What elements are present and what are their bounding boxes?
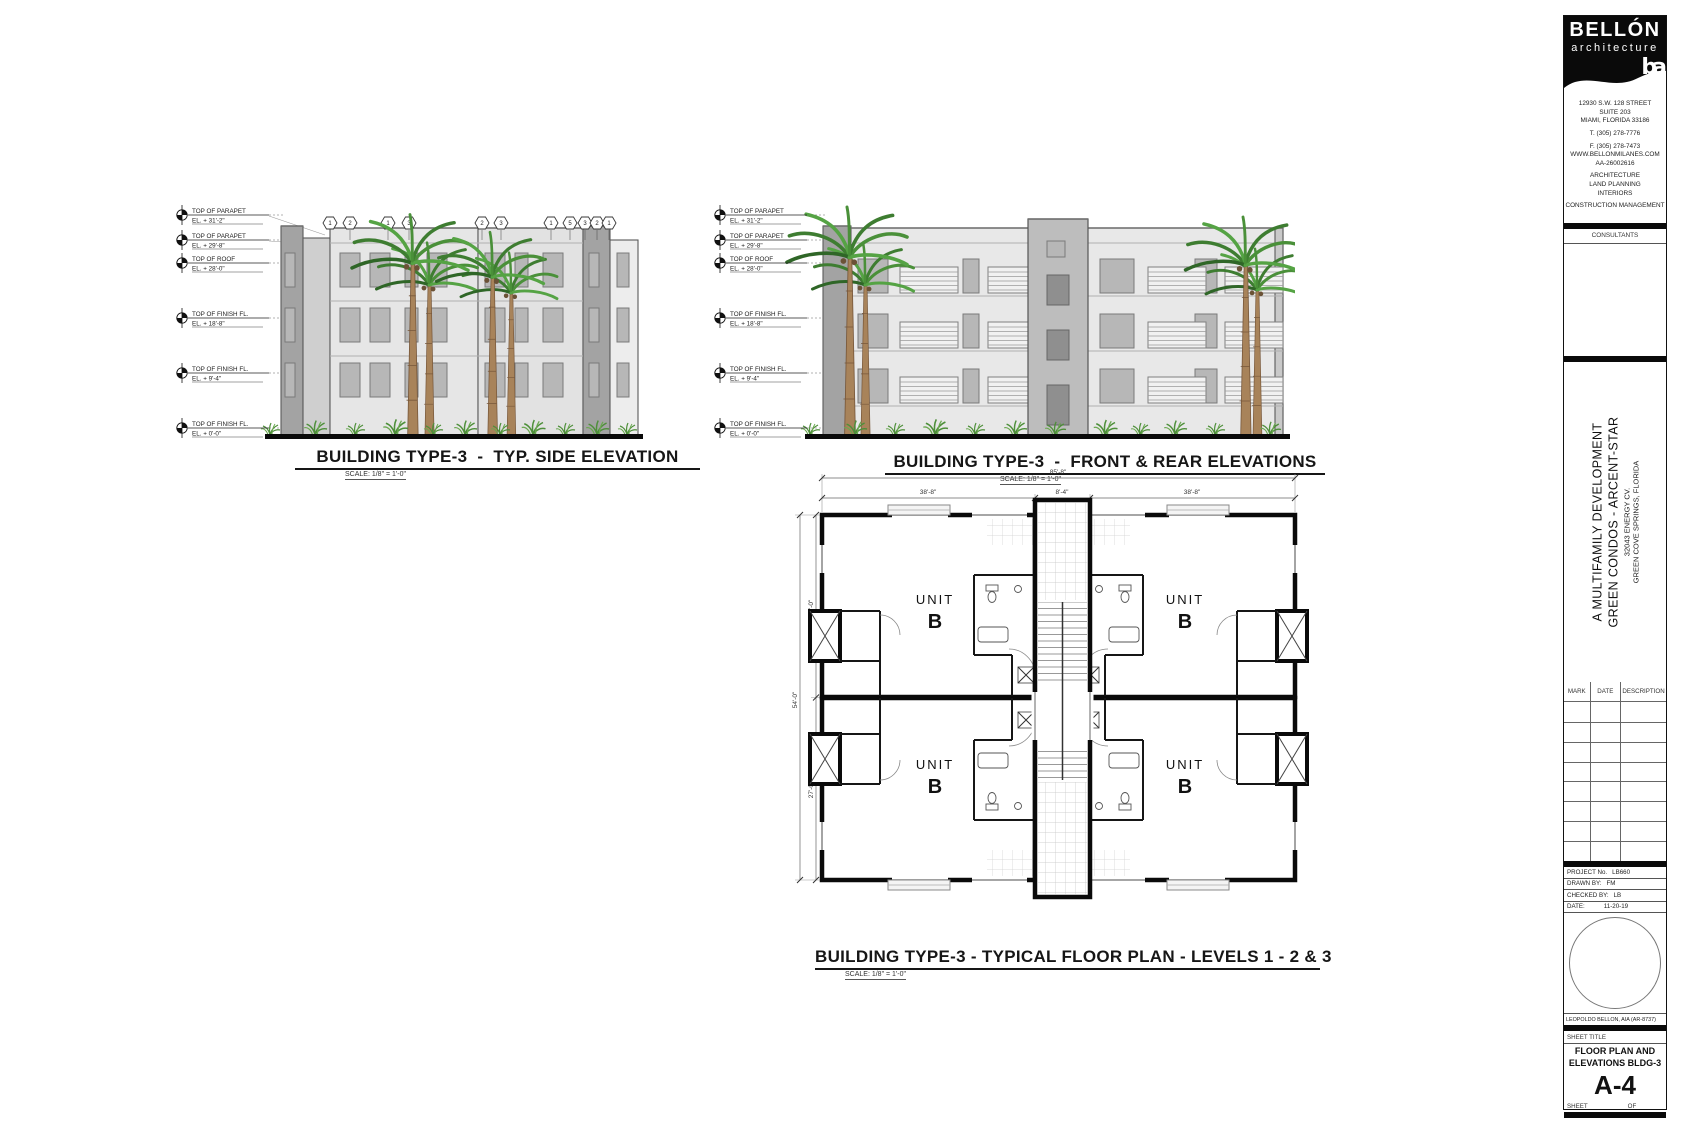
project-address-line: 32043 ENERGY CV. xyxy=(1622,417,1632,628)
sheet-number: A-4 xyxy=(1564,1070,1666,1100)
firm-name: BELLÓN xyxy=(1564,16,1666,42)
svg-text:TOP OF FINISH FL.: TOP OF FINISH FL. xyxy=(192,311,249,318)
firm-logo: BELLÓN architecture ba xyxy=(1564,16,1666,96)
svg-text:B: B xyxy=(1178,776,1192,798)
seal-area xyxy=(1564,913,1666,1013)
consultants-box xyxy=(1564,244,1666,356)
svg-text:EL. + 9'-4": EL. + 9'-4" xyxy=(730,376,759,383)
revision-row xyxy=(1564,742,1666,762)
project-number-value: LB660 xyxy=(1612,869,1630,876)
address-line: MIAMI, FLORIDA 33186 xyxy=(1564,117,1666,126)
svg-text:EL. + 18'-8": EL. + 18'-8" xyxy=(192,321,225,328)
revision-row xyxy=(1564,821,1666,841)
firm-license: AA-26002616 xyxy=(1564,160,1666,169)
revision-table: MARK DATE DESCRIPTION xyxy=(1564,682,1666,861)
svg-text:85'-8": 85'-8" xyxy=(1050,469,1067,476)
divider-bar xyxy=(1564,1112,1666,1118)
revision-col-date: DATE xyxy=(1591,682,1622,703)
sheet-of-row: SHEET OF xyxy=(1564,1100,1666,1112)
svg-text:EL. + 31'-2": EL. + 31'-2" xyxy=(192,218,225,225)
revision-row xyxy=(1564,722,1666,742)
svg-text:EL. + 9'-4": EL. + 9'-4" xyxy=(192,376,221,383)
firm-phone: T. (305) 278-7776 xyxy=(1564,130,1666,139)
svg-text:EL. + 0'-0": EL. + 0'-0" xyxy=(730,431,759,438)
service-line: INTERIORS xyxy=(1564,190,1666,199)
svg-text:38'-8": 38'-8" xyxy=(1184,489,1201,496)
drawn-by-value: FM xyxy=(1607,880,1616,887)
seal-circle xyxy=(1569,917,1661,1009)
revision-row xyxy=(1564,781,1666,801)
project-address-line: GREEN COVE SPRINGS, FLORIDA xyxy=(1631,417,1641,628)
date-row: DATE: 11-20-19 xyxy=(1564,902,1666,914)
svg-text:EL. + 0'-0": EL. + 0'-0" xyxy=(192,431,221,438)
side-elevation-drawing: 1 2 1 3 2 3 1 5 3 2 1 TOP OF PARAPET EL.… xyxy=(165,183,675,455)
service-line: CONSTRUCTION MANAGEMENT xyxy=(1564,202,1666,211)
revision-row xyxy=(1564,801,1666,821)
svg-text:8'-4": 8'-4" xyxy=(1056,489,1070,496)
svg-text:TOP OF FINISH FL.: TOP OF FINISH FL. xyxy=(730,421,787,428)
svg-text:B: B xyxy=(1178,611,1192,633)
svg-text:TOP OF PARAPET: TOP OF PARAPET xyxy=(192,233,246,240)
datum-markers: TOP OF PARAPET EL. + 31'-2" TOP OF PARAP… xyxy=(177,205,269,438)
side-elevation-title: BUILDING TYPE-3 - TYP. SIDE ELEVATION xyxy=(295,447,700,470)
service-line: LAND PLANNING xyxy=(1564,181,1666,190)
sheet-title: FLOOR PLAN AND ELEVATIONS BLDG-3 xyxy=(1564,1044,1666,1070)
sheet-title-label: SHEET TITLE xyxy=(1564,1031,1666,1044)
svg-text:TOP OF PARAPET: TOP OF PARAPET xyxy=(730,208,784,215)
svg-text:UNIT: UNIT xyxy=(916,592,954,607)
address-line: SUITE 203 xyxy=(1564,109,1666,118)
svg-text:TOP OF FINISH FL.: TOP OF FINISH FL. xyxy=(192,421,249,428)
floor-plan-scale: SCALE: 1/8" = 1'-0" xyxy=(845,971,906,980)
front-elevation-drawing: TOP OF PARAPET EL. + 31'-2" TOP OF PARAP… xyxy=(695,183,1295,455)
consultants-label: CONSULTANTS xyxy=(1564,229,1666,244)
svg-text:TOP OF PARAPET: TOP OF PARAPET xyxy=(730,233,784,240)
revision-col-mark: MARK xyxy=(1564,682,1591,703)
svg-text:TOP OF PARAPET: TOP OF PARAPET xyxy=(192,208,246,215)
checked-by-value: LB xyxy=(1614,892,1622,899)
firm-website: WWW.BELLONMILANES.COM xyxy=(1564,151,1666,160)
project-number-label: PROJECT No. xyxy=(1567,869,1607,876)
revision-col-description: DESCRIPTION xyxy=(1621,682,1666,703)
stair-corridor xyxy=(1035,500,1090,897)
svg-text:TOP OF ROOF: TOP OF ROOF xyxy=(730,256,773,263)
datum-markers: TOP OF PARAPET EL. + 31'-2" TOP OF PARAP… xyxy=(715,205,807,438)
title-block: BELLÓN architecture ba 12930 S.W. 128 ST… xyxy=(1563,15,1667,1110)
svg-text:54'-0": 54'-0" xyxy=(792,691,799,708)
service-line: ARCHITECTURE xyxy=(1564,172,1666,181)
of-label: OF xyxy=(1628,1103,1637,1110)
svg-text:EL. + 31'-2": EL. + 31'-2" xyxy=(730,218,763,225)
svg-text:UNIT: UNIT xyxy=(916,757,954,772)
project-name-line: GREEN CONDOS - ARCENT-STAR xyxy=(1605,417,1621,628)
project-title-block: A MULTIFAMILY DEVELOPMENT GREEN CONDOS -… xyxy=(1564,362,1666,682)
firm-fax: F. (305) 278-7473 xyxy=(1564,143,1666,152)
sheet-title-line: ELEVATIONS BLDG-3 xyxy=(1564,1058,1666,1070)
sheet-title-line: FLOOR PLAN AND xyxy=(1564,1046,1666,1058)
unit-quadrant-bottom-right xyxy=(1082,698,1307,890)
svg-text:UNIT: UNIT xyxy=(1166,592,1204,607)
firm-tagline: architecture xyxy=(1564,42,1666,54)
drawing-sheet: 1 2 1 3 2 3 1 5 3 2 1 TOP OF PARAPET EL.… xyxy=(0,0,1688,1125)
revision-row xyxy=(1564,762,1666,782)
unit-quadrant-bottom-left xyxy=(810,698,1035,890)
svg-text:EL. + 29'-8": EL. + 29'-8" xyxy=(192,243,225,250)
checked-by-row: CHECKED BY: LB xyxy=(1564,890,1666,902)
svg-text:38'-8": 38'-8" xyxy=(920,489,937,496)
date-value: 11-20-19 xyxy=(1604,903,1628,910)
ba-monogram-icon: ba xyxy=(1641,55,1662,80)
floor-plan-drawing: 85'-8" 38'-8" 8'-4" 38'-8" 54'-0" 27'-0"… xyxy=(785,452,1310,944)
svg-text:EL. + 29'-8": EL. + 29'-8" xyxy=(730,243,763,250)
svg-text:TOP OF ROOF: TOP OF ROOF xyxy=(192,256,235,263)
svg-text:B: B xyxy=(928,776,942,798)
svg-text:TOP OF FINISH FL.: TOP OF FINISH FL. xyxy=(192,366,249,373)
address-line: 12930 S.W. 128 STREET xyxy=(1564,100,1666,109)
revision-row xyxy=(1564,702,1666,722)
date-label: DATE: xyxy=(1567,903,1585,910)
svg-text:B: B xyxy=(928,611,942,633)
firm-address-block: 12930 S.W. 128 STREET SUITE 203 MIAMI, F… xyxy=(1564,96,1666,223)
project-info: PROJECT No. LB660 DRAWN BY: FM CHECKED B… xyxy=(1564,867,1666,913)
svg-text:EL. + 28'-0": EL. + 28'-0" xyxy=(192,266,225,273)
svg-text:EL. + 18'-8": EL. + 18'-8" xyxy=(730,321,763,328)
svg-text:TOP OF FINISH FL.: TOP OF FINISH FL. xyxy=(730,366,787,373)
svg-text:TOP OF FINISH FL.: TOP OF FINISH FL. xyxy=(730,311,787,318)
revision-table-header: MARK DATE DESCRIPTION xyxy=(1564,682,1666,702)
revision-row xyxy=(1564,841,1666,861)
sheet-label: SHEET xyxy=(1564,1103,1588,1110)
svg-text:EL. + 28'-0": EL. + 28'-0" xyxy=(730,266,763,273)
project-number-row: PROJECT No. LB660 xyxy=(1564,867,1666,879)
checked-by-label: CHECKED BY: xyxy=(1567,892,1609,899)
architect-line: LEOPOLDO BELLON, AIA (AR-8737) xyxy=(1564,1013,1666,1025)
svg-text:UNIT: UNIT xyxy=(1166,757,1204,772)
stair-tower xyxy=(1028,219,1088,436)
drawn-by-row: DRAWN BY: FM xyxy=(1564,879,1666,891)
drawn-by-label: DRAWN BY: xyxy=(1567,880,1602,887)
side-elevation-scale: SCALE: 1/8" = 1'-0" xyxy=(345,471,406,480)
project-name-line: A MULTIFAMILY DEVELOPMENT xyxy=(1589,417,1605,628)
floor-plan-title: BUILDING TYPE-3 - TYPICAL FLOOR PLAN - L… xyxy=(815,947,1320,970)
